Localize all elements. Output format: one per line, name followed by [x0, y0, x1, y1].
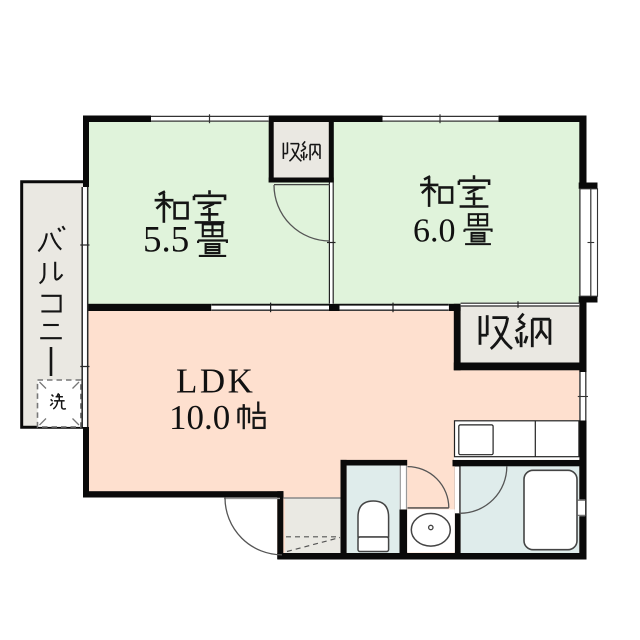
svg-text:5.5: 5.5	[143, 220, 189, 261]
svg-text:6.0: 6.0	[413, 213, 456, 250]
svg-text:LDK: LDK	[176, 362, 255, 401]
svg-text:10.0: 10.0	[169, 398, 230, 437]
